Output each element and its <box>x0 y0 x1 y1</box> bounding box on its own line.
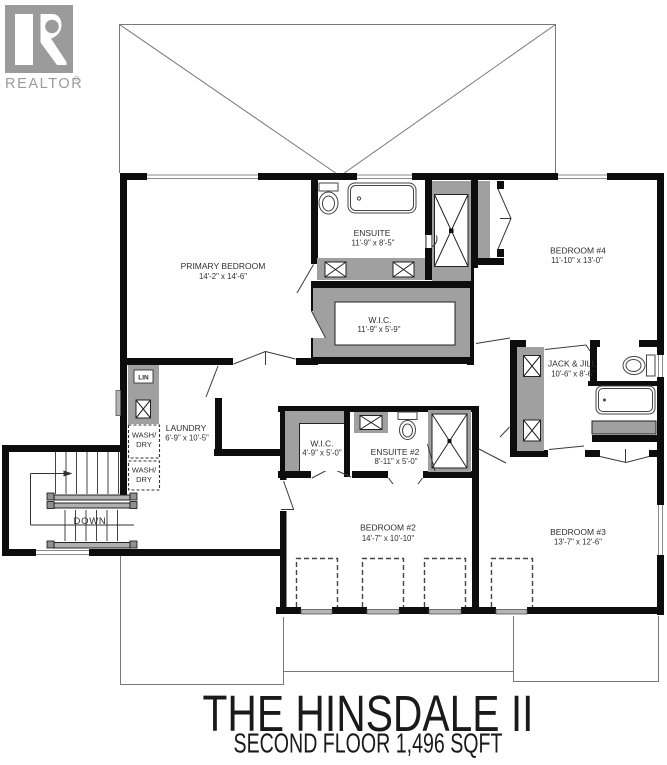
svg-text:14'-7" x 10'-10": 14'-7" x 10'-10" <box>362 534 415 543</box>
svg-text:6'-9" x 10'-5": 6'-9" x 10'-5" <box>165 434 209 443</box>
svg-text:WASH/: WASH/ <box>132 466 157 475</box>
svg-text:4'-9" x 5'-0": 4'-9" x 5'-0" <box>302 449 342 458</box>
svg-text:BEDROOM #4: BEDROOM #4 <box>550 246 606 256</box>
svg-text:BEDROOM #3: BEDROOM #3 <box>550 527 606 537</box>
svg-text:13'-7" x 12'-6": 13'-7" x 12'-6" <box>554 538 602 547</box>
svg-text:W.I.C.: W.I.C. <box>368 315 391 325</box>
svg-text:ENSUITE #2: ENSUITE #2 <box>371 447 420 457</box>
svg-text:REALTOR: REALTOR <box>5 76 83 92</box>
svg-text:SECOND FLOOR 1,496 SQFT: SECOND FLOOR 1,496 SQFT <box>234 728 503 759</box>
svg-text:JACK & JILL: JACK & JILL <box>548 359 596 369</box>
svg-text:LIN: LIN <box>138 375 149 382</box>
svg-text:14'-2" x 14'-6": 14'-2" x 14'-6" <box>199 272 247 281</box>
svg-text:8'-11" x 5'-0": 8'-11" x 5'-0" <box>374 457 417 466</box>
svg-text:11'-10" x 13'-0": 11'-10" x 13'-0" <box>551 256 603 265</box>
svg-text:DRY: DRY <box>136 440 152 449</box>
svg-text:DOWN: DOWN <box>74 516 107 527</box>
svg-text:ENSUITE: ENSUITE <box>354 228 391 238</box>
svg-text:W.I.C.: W.I.C. <box>310 439 333 449</box>
svg-text:®: ® <box>74 75 80 83</box>
svg-text:DRY: DRY <box>136 475 152 484</box>
svg-text:10'-6" x 8'-6": 10'-6" x 8'-6" <box>551 370 595 379</box>
svg-text:LAUNDRY: LAUNDRY <box>166 423 207 433</box>
svg-text:11'-9" x 5'-9": 11'-9" x 5'-9" <box>357 325 400 334</box>
svg-text:11'-9" x 8'-5": 11'-9" x 8'-5" <box>351 239 394 248</box>
svg-text:PRIMARY BEDROOM: PRIMARY BEDROOM <box>181 261 266 271</box>
svg-text:WASH/: WASH/ <box>132 431 157 440</box>
svg-text:BEDROOM #2: BEDROOM #2 <box>360 523 416 533</box>
